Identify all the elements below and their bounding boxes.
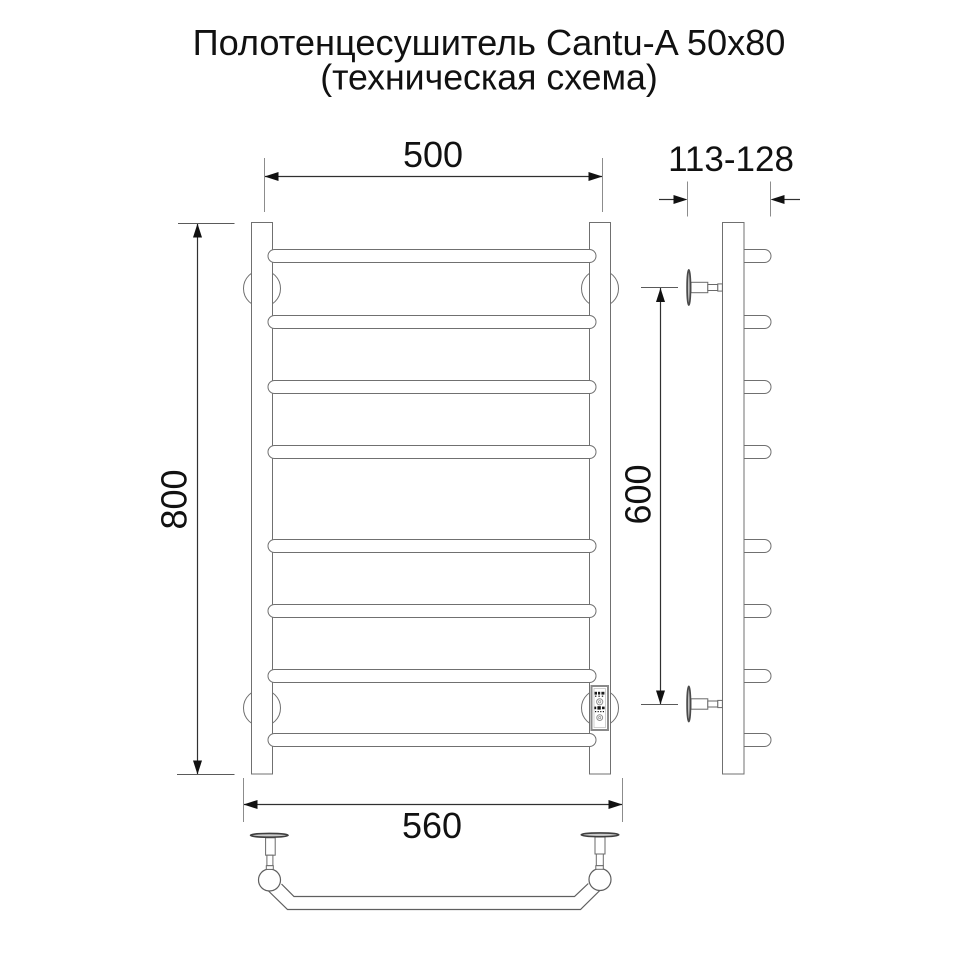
svg-text:500: 500	[403, 134, 463, 175]
svg-text:600: 600	[618, 464, 659, 524]
svg-text:800: 800	[154, 469, 195, 529]
svg-text:560: 560	[402, 805, 462, 846]
svg-text:113-128: 113-128	[668, 140, 794, 179]
svg-text:(техническая схема): (техническая схема)	[320, 58, 658, 98]
